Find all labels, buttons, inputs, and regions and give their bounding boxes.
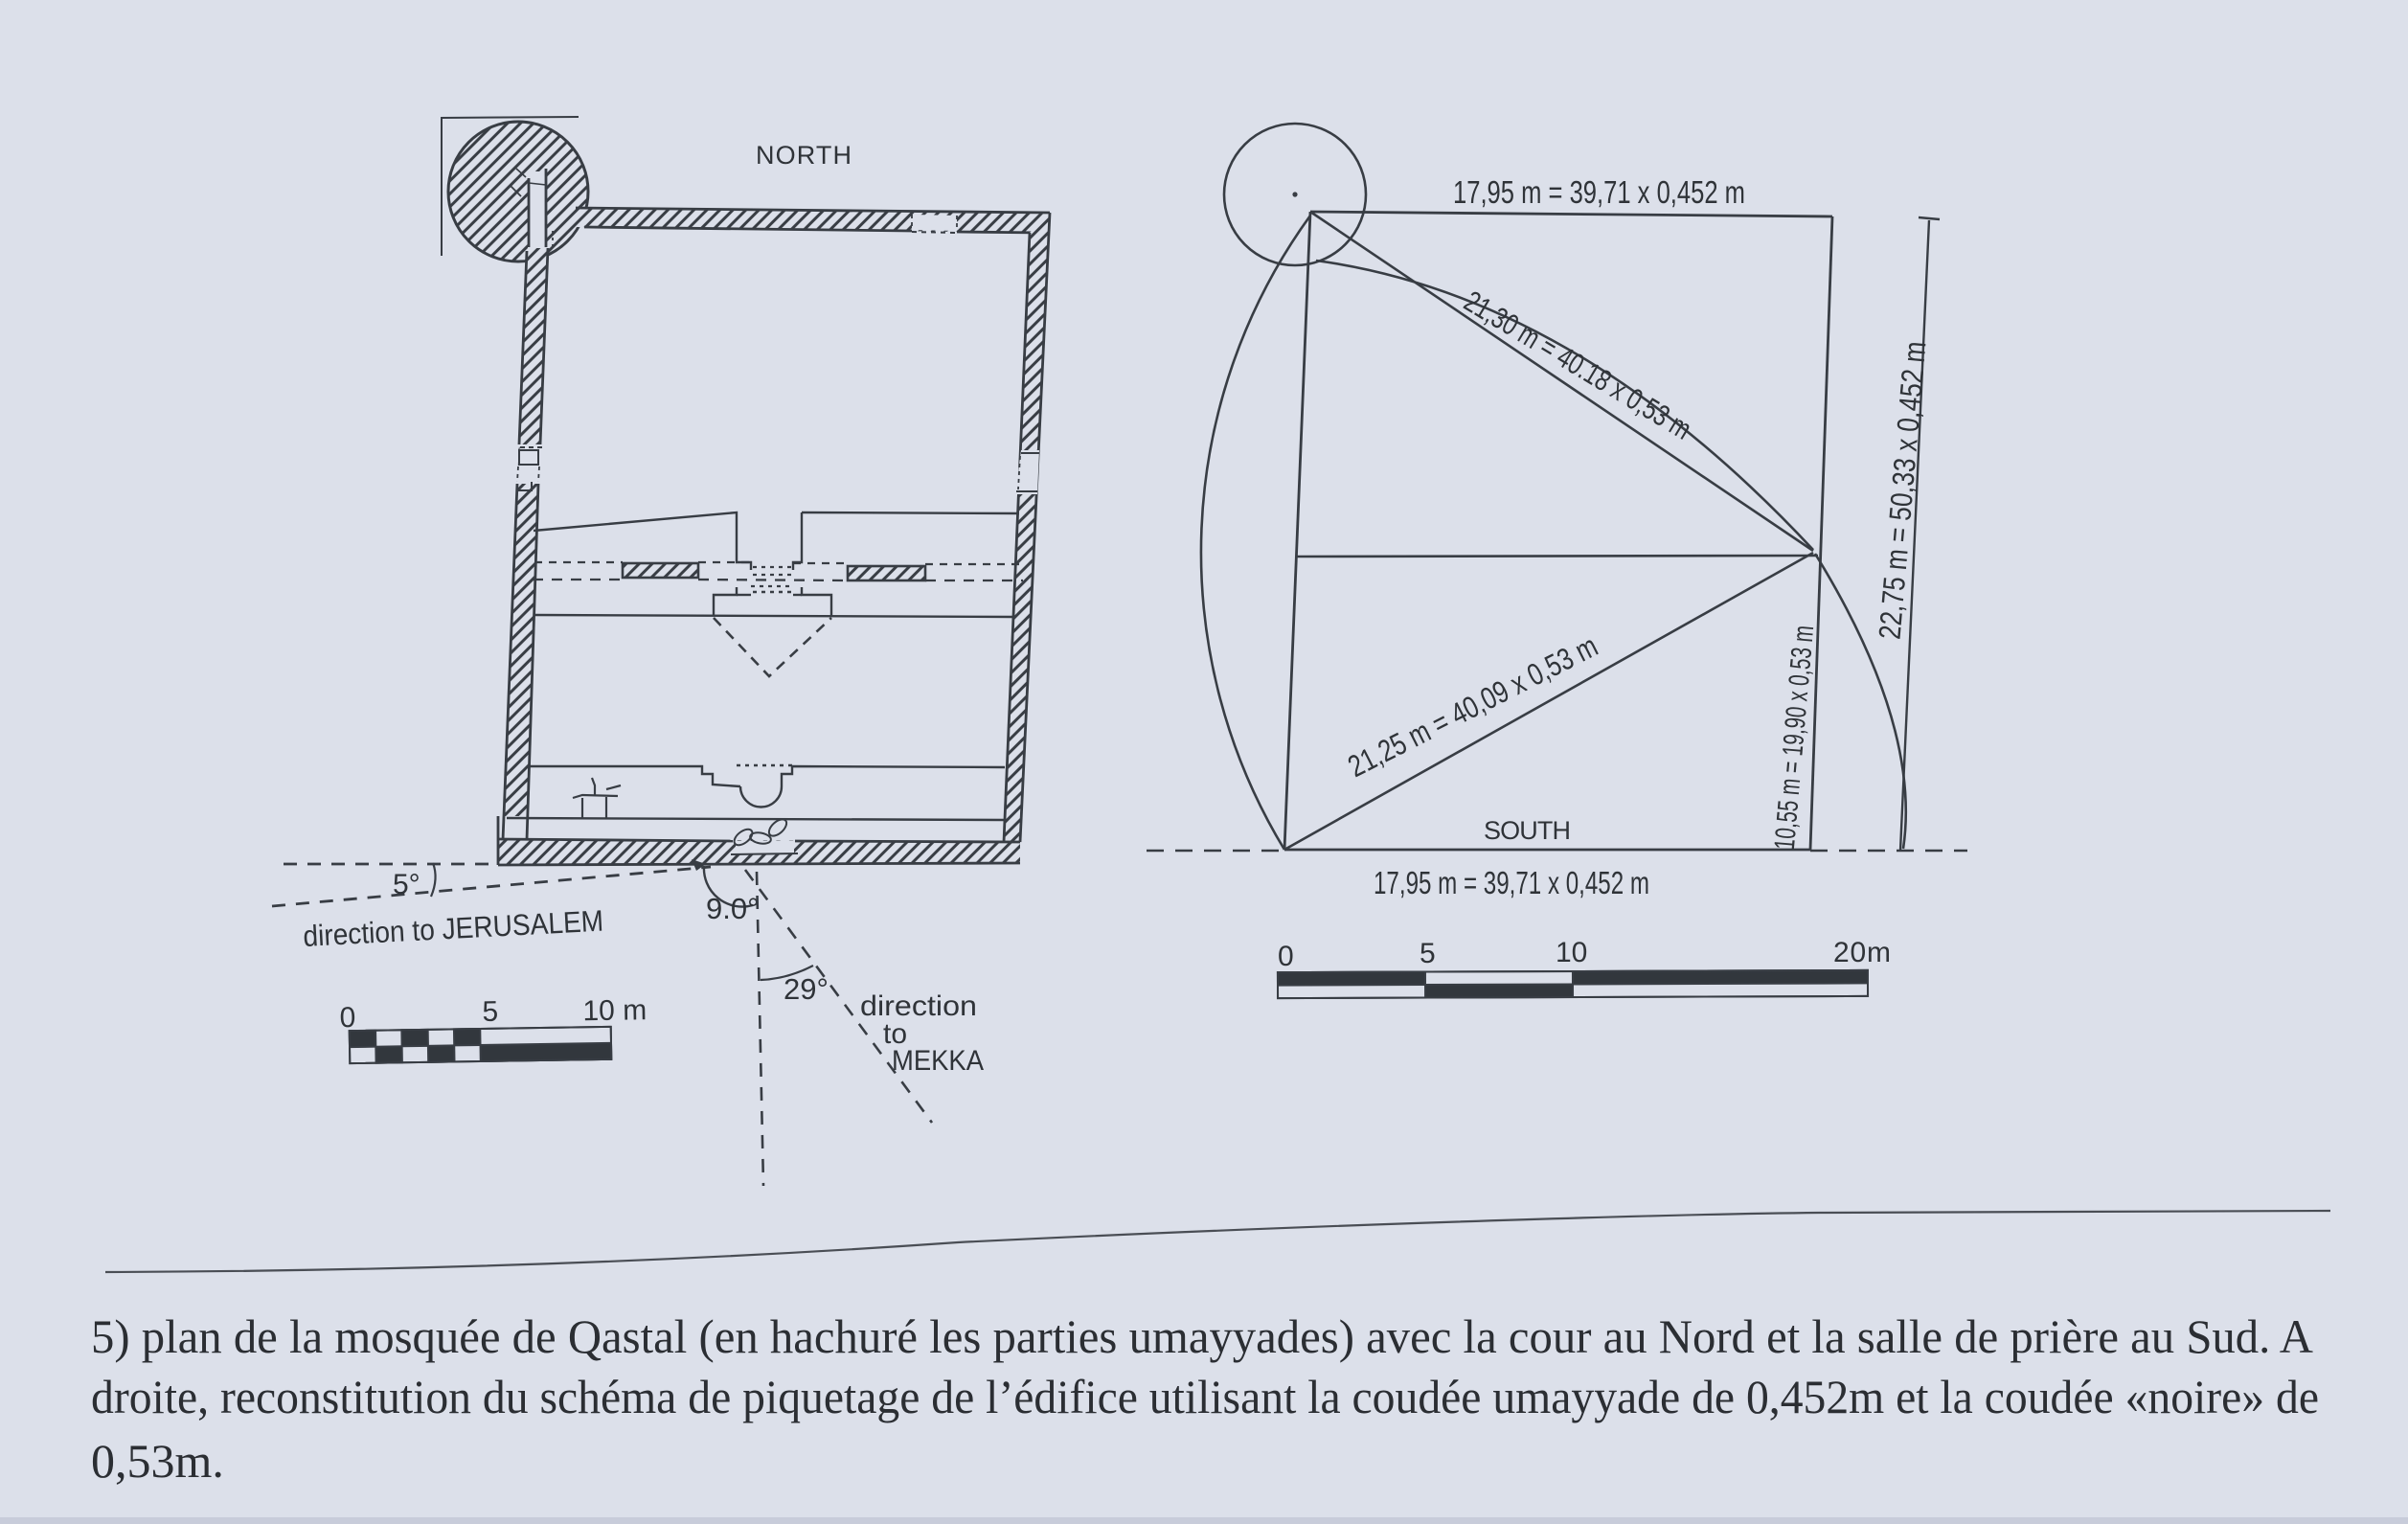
svg-text:5: 5 xyxy=(482,996,498,1028)
svg-text:MEKKA: MEKKA xyxy=(892,1045,984,1077)
svg-text:0,53m.: 0,53m. xyxy=(91,1434,224,1488)
svg-text:21,30 m = 40.18 x 0,53 m: 21,30 m = 40.18 x 0,53 m xyxy=(1459,284,1697,446)
svg-text:10 m: 10 m xyxy=(582,994,647,1027)
svg-text:5°: 5° xyxy=(393,869,420,900)
svg-text:5) plan de la mosquée de Qasta: 5) plan de la mosquée de Qastal (en hach… xyxy=(91,1309,2313,1363)
svg-text:10: 10 xyxy=(1556,937,1587,968)
svg-text:29°: 29° xyxy=(784,972,829,1006)
svg-text:SOUTH: SOUTH xyxy=(1484,816,1571,845)
svg-text:NORTH: NORTH xyxy=(756,141,852,170)
svg-text:0: 0 xyxy=(339,1002,355,1034)
svg-text:17,95 m = 39,71 x 0,452 m: 17,95 m = 39,71 x 0,452 m xyxy=(1453,174,1745,210)
svg-text:direction to JERUSALEM: direction to JERUSALEM xyxy=(303,904,604,953)
svg-text:droite, reconstitution du sché: droite, reconstitution du schéma de piqu… xyxy=(91,1370,2319,1423)
svg-text:9.0°: 9.0° xyxy=(706,892,760,925)
svg-text:direction: direction xyxy=(860,990,977,1022)
svg-text:22,75 m = 50,33 x 0,452 m: 22,75 m = 50,33 x 0,452 m xyxy=(1872,340,1932,641)
svg-text:20m: 20m xyxy=(1833,937,1891,968)
svg-text:5: 5 xyxy=(1420,938,1436,969)
svg-text:17,95 m = 39,71 x 0,452 m: 17,95 m = 39,71 x 0,452 m xyxy=(1374,865,1649,900)
svg-text:0: 0 xyxy=(1278,941,1294,972)
svg-text:21,25 m = 40,09 x 0,53 m: 21,25 m = 40,09 x 0,53 m xyxy=(1343,628,1603,784)
